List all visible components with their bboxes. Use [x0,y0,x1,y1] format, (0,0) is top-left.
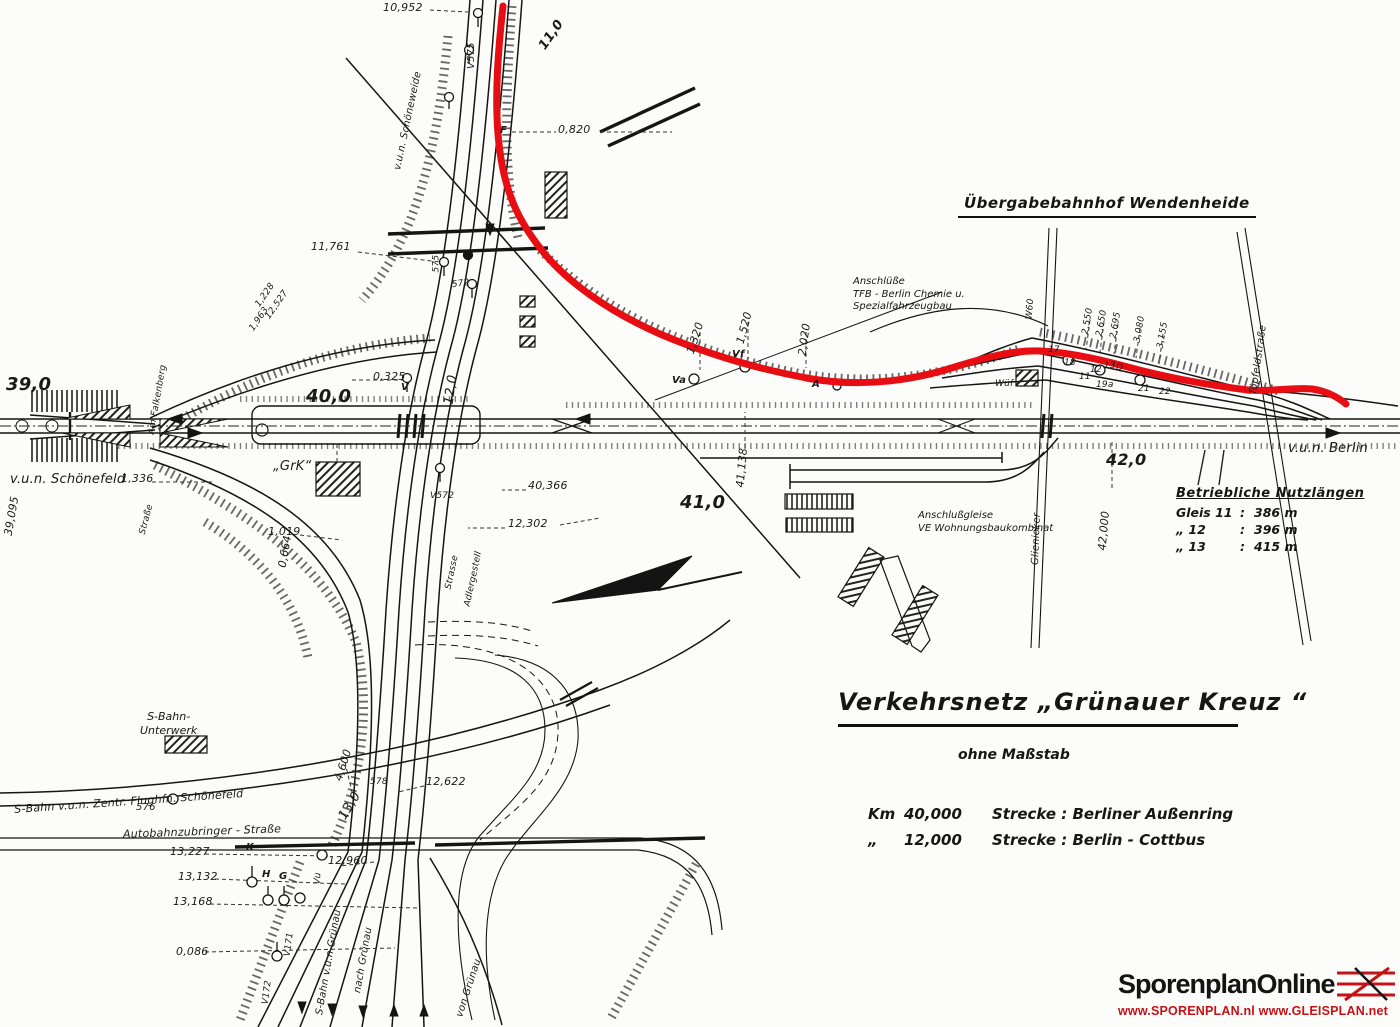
km-row1-label: Km [868,805,904,823]
km-row1-strecke: Strecke : Berliner Außenring [992,805,1238,823]
nutzlaengen-row: Gleis 11 : 386 m [1176,505,1364,522]
nutzlaengen-row: „ 13 : 415 m [1176,539,1364,556]
label-km-12302: 12,302 [508,518,548,529]
km-row2-value: 12,000 [904,831,992,849]
plan-subtitle: ohne Maßstab [958,747,1238,763]
nutzlaengen-table: Betriebliche Nutzlängen Gleis 11 : 386 m… [1176,486,1364,556]
label-km-11761: 11,761 [311,241,351,252]
label-v572: V572 [430,492,454,501]
label-signal-575: 575 [433,255,442,273]
label-km-0325: 0,325 [373,371,406,382]
sporenplan-logo: SporenplanOnline www.SPORENPLAN.nl www.G… [1118,966,1396,1018]
label-signal-f: F [500,126,507,136]
nutz-colon: : [1240,522,1254,539]
track-plan-scan: 10,952 V575 11,0 v.u.n. Schöneweide 0,82… [0,0,1400,1027]
label-signal-576: 576 [136,803,156,813]
nutz-leaders [1198,450,1224,485]
km-row1-value: 40,000 [904,805,992,823]
label-km-0820: 0,820 [558,124,591,135]
km-table: Km 40,000 Strecke : Berliner Außenring „… [868,805,1238,849]
station-header: Übergabebahnhof Wendenheide [958,194,1256,218]
label-grk: „GrK“ [273,460,311,473]
nutz-gleis: Gleis 11 [1176,505,1240,522]
anschluss-chemie-line3: Spezialfahrzeugbau [853,301,965,314]
label-w60: W60 [1026,298,1037,320]
label-km-1336: 1,336 [121,473,154,484]
label-signal-a: A [812,380,820,390]
nutzlaengen-heading: Betriebliche Nutzlängen [1176,486,1364,501]
label-signal-g: G [279,872,287,882]
km-row2-strecke: Strecke : Berlin - Cottbus [992,831,1238,849]
label-km-12622: 12,622 [426,776,466,787]
km-row2-label: „ [868,831,904,849]
label-wuef: Wüf [995,380,1013,389]
label-track-18: 18 [1064,359,1076,368]
label-km-13168: 13,168 [173,896,213,907]
logo-urls: www.SPORENPLAN.nl www.GLEISPLAN.net [1118,1004,1396,1018]
label-signal-h: H [262,870,271,880]
label-track-19a: 19a [1096,381,1114,390]
label-km-12-0: 12,0 [443,374,460,405]
embankment-bands [155,6,1282,1020]
label-track-21: 21 [1138,385,1150,394]
nutz-colon: : [1240,539,1254,556]
label-unterwerk: S-Bahn- Unterwerk [140,710,197,738]
label-km-40366: 40,366 [528,480,568,491]
label-track-22: 22 [1159,388,1171,397]
anschluss-chemie-line1: Anschlüße [853,276,965,289]
label-km-41138: 41,138 [735,447,749,488]
unterwerk-line2: Unterwerk [140,724,197,738]
label-track-12: 12 [1090,366,1102,375]
label-anschluss-chemie: Anschlüße TFB - Berlin Chemie u. Spezial… [853,276,965,314]
label-track-d: D [1116,364,1123,373]
label-km-10952: 10,952 [383,2,423,13]
logo-text: SporenplanOnline [1118,971,1335,998]
label-km-0086: 0,086 [176,946,209,957]
label-signal-vu: Vu [314,872,324,885]
plan-title: Verkehrsnetz „Grünauer Kreuz “ [838,688,1238,727]
label-signal-k: K [246,843,254,853]
label-glienicker: Glienicker [1031,513,1043,565]
label-track-11: 11 [1079,373,1091,382]
label-km-13227: 13,227 [170,846,210,857]
label-km-42000: 42,000 [1097,510,1111,551]
nutzlaengen-row: „ 12 : 396 m [1176,522,1364,539]
label-km-40-0: 40,0 [306,388,351,406]
nutz-len: 396 m [1254,522,1364,539]
label-track-17: 17 [1048,346,1060,355]
label-km-13132: 13,132 [178,871,218,882]
label-signal-va: Va [672,376,686,386]
unterwerk-line1: S-Bahn- [140,710,197,724]
label-vun-berlin: v.u.n. Berlin [1288,442,1368,455]
label-signal-v: V [401,383,409,393]
nutz-colon: : [1240,505,1254,522]
label-km-12960: 12,960 [328,855,368,866]
label-km-41-0: 41,0 [680,494,725,512]
label-signal-vf: Vf [732,350,745,360]
north-arrow [552,556,742,603]
structures [30,172,1038,753]
nutz-len: 415 m [1254,539,1364,556]
nutz-len: 386 m [1254,505,1364,522]
nutz-gleis: „ 12 [1176,522,1240,539]
anschluss-chemie-line2: TFB - Berlin Chemie u. [853,289,965,302]
label-v575: V575 [467,42,477,69]
nutz-gleis: „ 13 [1176,539,1240,556]
logo-track-icon [1337,966,1395,1002]
label-km-42-0: 42,0 [1106,452,1146,468]
label-km-39-0: 39,0 [6,376,51,394]
title-block: Verkehrsnetz „Grünauer Kreuz “ ohne Maßs… [838,688,1238,849]
label-schoenefeld: v.u.n. Schönefeld [10,473,125,486]
label-signal-578: 578 [370,778,388,787]
label-track-13: 13 [1104,362,1116,371]
